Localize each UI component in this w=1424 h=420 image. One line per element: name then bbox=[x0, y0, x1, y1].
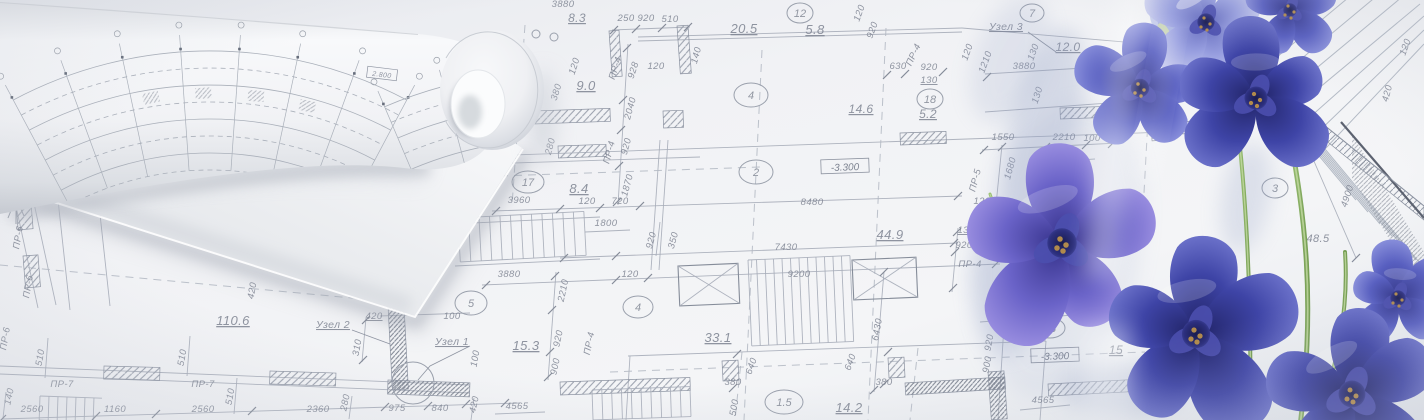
vignette-overlay bbox=[0, 0, 1424, 420]
banner-scene: 6124217187541.5133 -3.300-3.300 38808.32… bbox=[0, 0, 1424, 420]
blueprint-banner: 6124217187541.5133 -3.300-3.300 38808.32… bbox=[0, 0, 1424, 420]
